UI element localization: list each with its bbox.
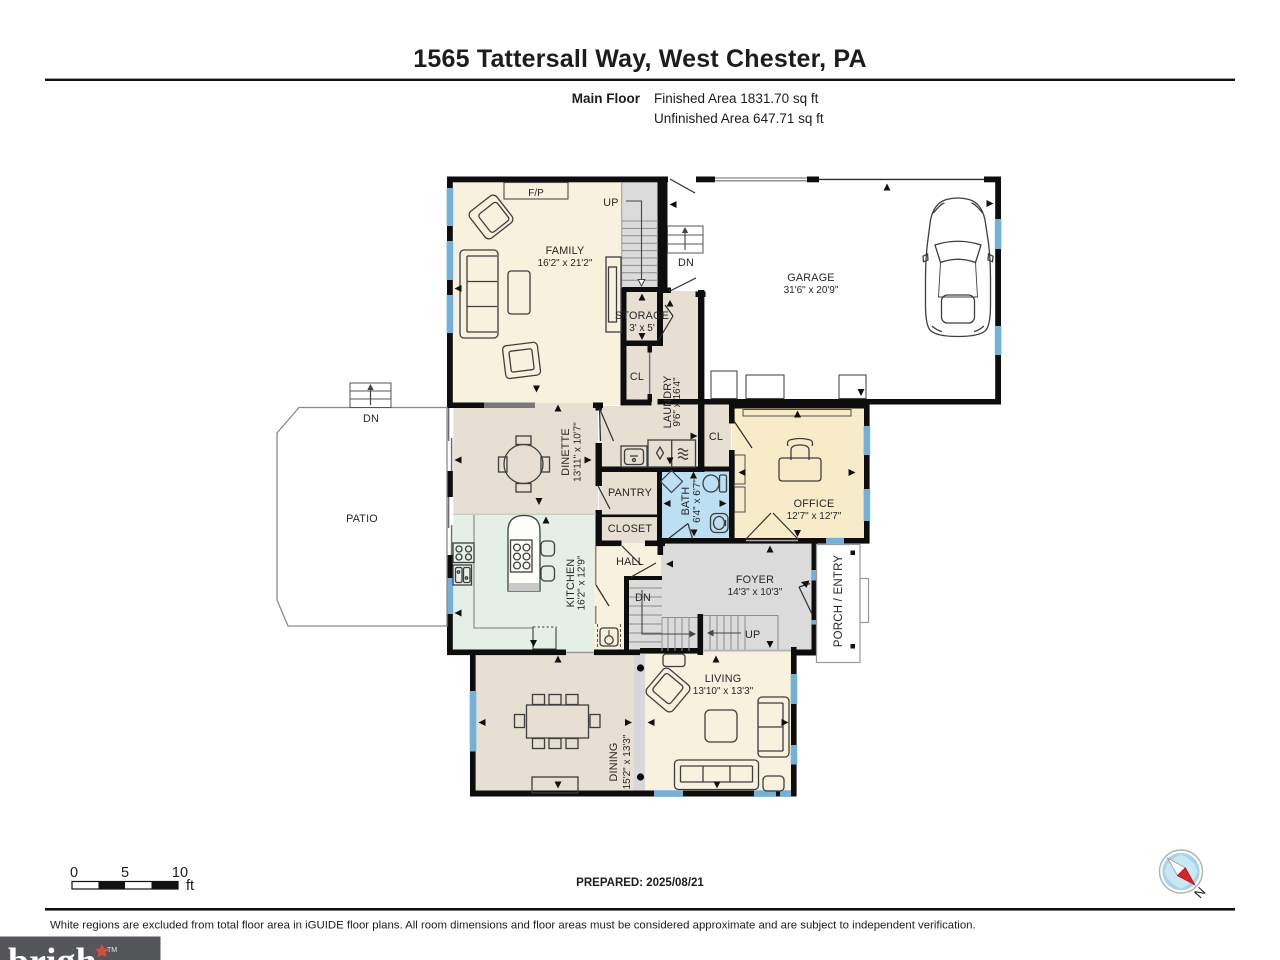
svg-text:DN: DN bbox=[678, 257, 694, 269]
svg-text:DN: DN bbox=[635, 592, 651, 604]
svg-text:13'10" x 13'3": 13'10" x 13'3" bbox=[693, 686, 754, 697]
svg-text:14'3" x 10'3": 14'3" x 10'3" bbox=[728, 587, 783, 598]
svg-text:3' x 5': 3' x 5' bbox=[629, 323, 655, 334]
svg-text:ft: ft bbox=[186, 878, 194, 894]
svg-text:16'2" x 21'2": 16'2" x 21'2" bbox=[538, 258, 593, 269]
svg-text:DN: DN bbox=[363, 413, 379, 425]
svg-text:KITCHEN: KITCHEN bbox=[565, 559, 577, 608]
svg-text:Unfinished Area 647.71 sq ft: Unfinished Area 647.71 sq ft bbox=[654, 111, 824, 126]
svg-text:PREPARED: 2025/08/21: PREPARED: 2025/08/21 bbox=[576, 877, 704, 889]
svg-text:LIVING: LIVING bbox=[705, 673, 742, 685]
svg-text:HALL: HALL bbox=[616, 556, 644, 568]
svg-text:UP: UP bbox=[745, 629, 760, 641]
svg-text:F/P: F/P bbox=[528, 188, 544, 199]
svg-text:16'2" x 12'9": 16'2" x 12'9" bbox=[577, 555, 588, 610]
svg-text:5: 5 bbox=[121, 865, 129, 881]
svg-text:PORCH / ENTRY: PORCH / ENTRY bbox=[833, 555, 845, 648]
svg-text:12'7" x 12'7": 12'7" x 12'7" bbox=[787, 511, 842, 522]
svg-text:FAMILY: FAMILY bbox=[546, 245, 585, 257]
svg-text:Main Floor: Main Floor bbox=[572, 91, 641, 106]
svg-text:13'11" x 10'7": 13'11" x 10'7" bbox=[573, 422, 584, 482]
svg-text:BATH: BATH bbox=[680, 487, 692, 516]
svg-text:TM: TM bbox=[107, 947, 117, 954]
svg-text:Finished Area 1831.70 sq ft: Finished Area 1831.70 sq ft bbox=[654, 91, 819, 106]
svg-text:31'6" x 20'9": 31'6" x 20'9" bbox=[784, 285, 839, 296]
svg-text:1565 Tattersall Way, West Ches: 1565 Tattersall Way, West Chester, PA bbox=[413, 45, 866, 73]
svg-text:DINETTE: DINETTE bbox=[560, 428, 572, 476]
svg-text:6'4" x 6'7": 6'4" x 6'7" bbox=[692, 479, 703, 523]
svg-text:White regions are excluded fro: White regions are excluded from total fl… bbox=[50, 920, 976, 932]
svg-text:FOYER: FOYER bbox=[736, 574, 774, 586]
svg-text:CL: CL bbox=[630, 371, 644, 383]
svg-text:GARAGE: GARAGE bbox=[787, 272, 834, 284]
svg-text:brigh: brigh bbox=[8, 941, 97, 960]
svg-text:OFFICE: OFFICE bbox=[794, 498, 835, 510]
svg-text:9'6" x 16'4": 9'6" x 16'4" bbox=[672, 377, 683, 427]
svg-text:STORAGE: STORAGE bbox=[615, 310, 669, 322]
svg-text:CLOSET: CLOSET bbox=[608, 523, 653, 535]
svg-text:UP: UP bbox=[603, 197, 618, 209]
svg-text:PANTRY: PANTRY bbox=[608, 487, 652, 499]
svg-text:PATIO: PATIO bbox=[346, 513, 378, 525]
svg-text:0: 0 bbox=[70, 865, 78, 881]
svg-text:DINING: DINING bbox=[608, 743, 620, 782]
svg-text:CL: CL bbox=[709, 431, 723, 443]
svg-text:15'2" x 13'3": 15'2" x 13'3" bbox=[622, 734, 633, 789]
